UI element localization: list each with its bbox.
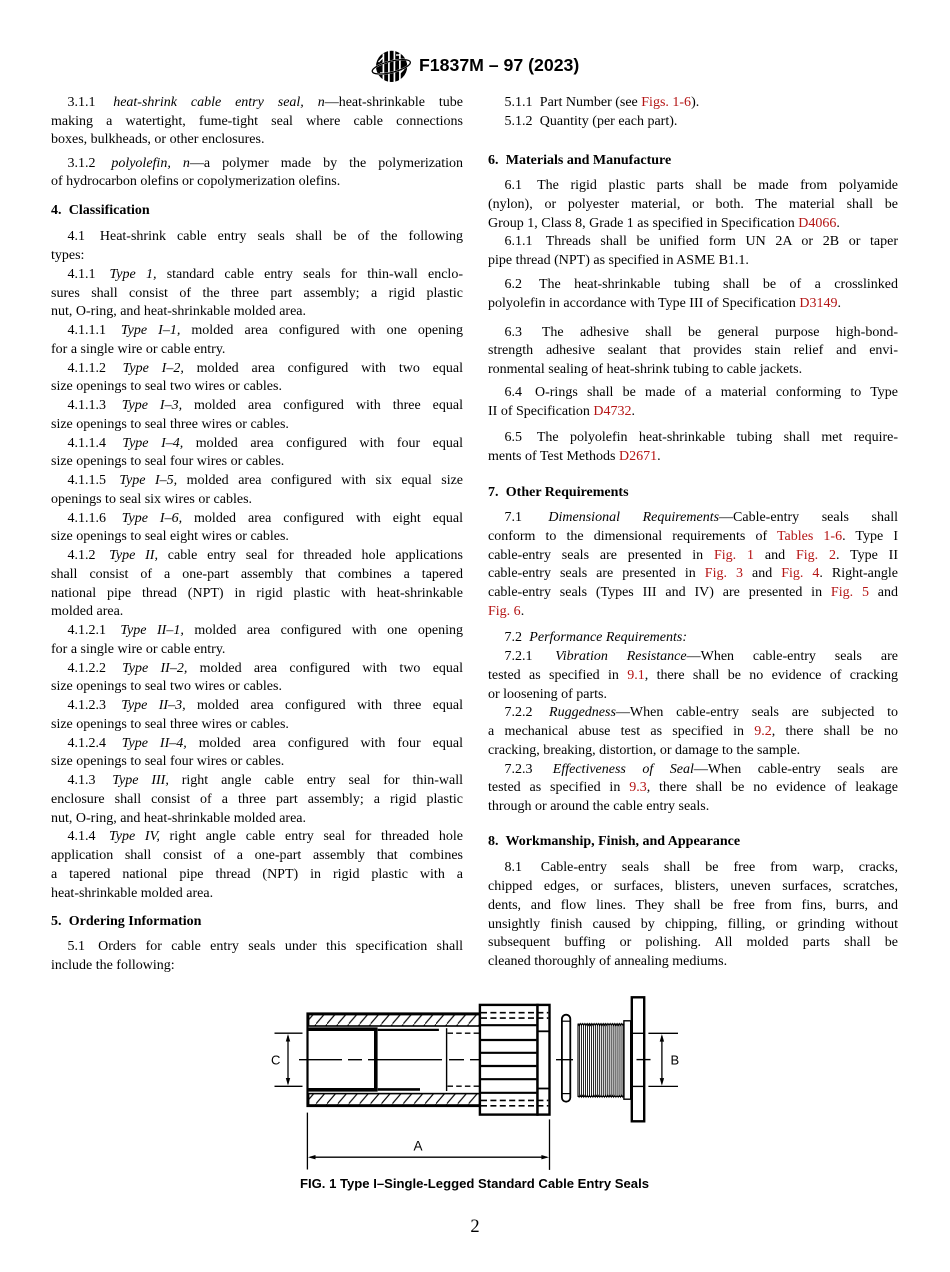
svg-text:B: B xyxy=(671,1052,680,1067)
svg-text:C: C xyxy=(271,1052,280,1067)
svg-text:A: A xyxy=(414,1139,423,1154)
svg-text:FIG. 1 Type I–Single-Legged St: FIG. 1 Type I–Single-Legged Standard Cab… xyxy=(300,1176,649,1191)
